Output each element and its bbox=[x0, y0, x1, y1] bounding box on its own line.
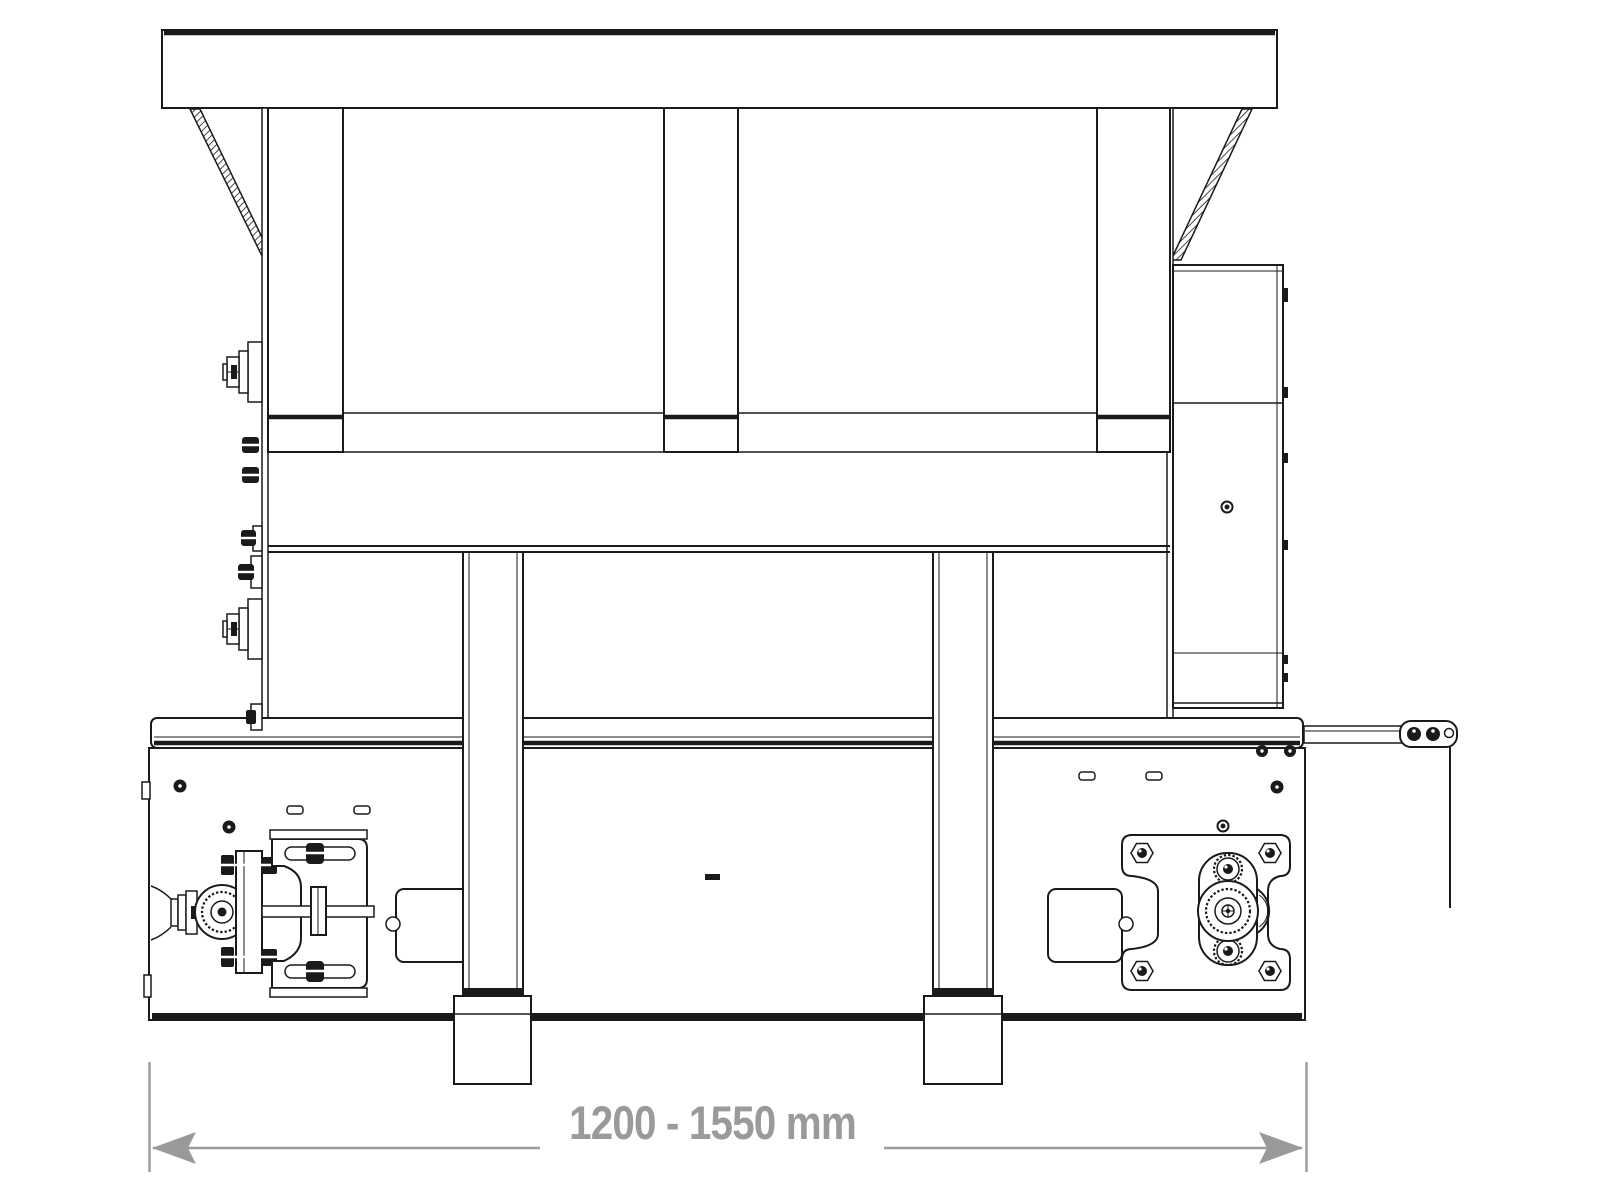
fork-foot-right bbox=[924, 996, 1002, 1084]
top-mounting-plate bbox=[162, 30, 1277, 108]
fork-channel-right bbox=[1097, 108, 1170, 452]
small-wall-bolt-4 bbox=[238, 556, 262, 588]
fork-leg-left bbox=[462, 553, 524, 996]
fork-channel-left bbox=[268, 108, 343, 452]
fork-foot-left bbox=[454, 996, 531, 1084]
bearing-flange bbox=[1198, 853, 1258, 965]
left-slant-gusset bbox=[190, 109, 272, 258]
rod-slider-block bbox=[311, 887, 326, 935]
small-wall-bolt-1 bbox=[242, 437, 259, 453]
dimension-label: 1200 - 1550 mm bbox=[564, 1098, 861, 1147]
small-wall-bolt-3 bbox=[241, 526, 262, 551]
extension-arm bbox=[1304, 721, 1457, 908]
fork-leg-right bbox=[932, 553, 994, 996]
bearing-center bbox=[1198, 881, 1258, 941]
junction-box-left bbox=[386, 889, 470, 962]
attachment-front-view-drawing bbox=[0, 0, 1600, 1200]
hopper-seam-lines bbox=[268, 546, 1170, 552]
tensioner-bracket bbox=[262, 830, 374, 997]
small-wall-bolt-2 bbox=[242, 467, 259, 483]
slot-bolt-bottom bbox=[306, 961, 324, 982]
side-drive-housing bbox=[1173, 265, 1288, 708]
slot-bolt-top bbox=[306, 843, 324, 864]
technical-drawing-page: 1200 - 1550 mm bbox=[0, 0, 1600, 1200]
large-wall-bolt-upper bbox=[223, 342, 262, 402]
frame-center-mark bbox=[705, 874, 720, 880]
large-wall-bolt-lower bbox=[223, 599, 262, 659]
right-slant-gusset bbox=[1171, 109, 1252, 260]
frame-left-tab-lower bbox=[144, 975, 151, 997]
fork-channel-center bbox=[664, 108, 738, 452]
left-wall-bolts bbox=[223, 342, 262, 730]
frame-left-tab-upper bbox=[142, 782, 150, 799]
junction-box-right bbox=[1048, 889, 1133, 962]
